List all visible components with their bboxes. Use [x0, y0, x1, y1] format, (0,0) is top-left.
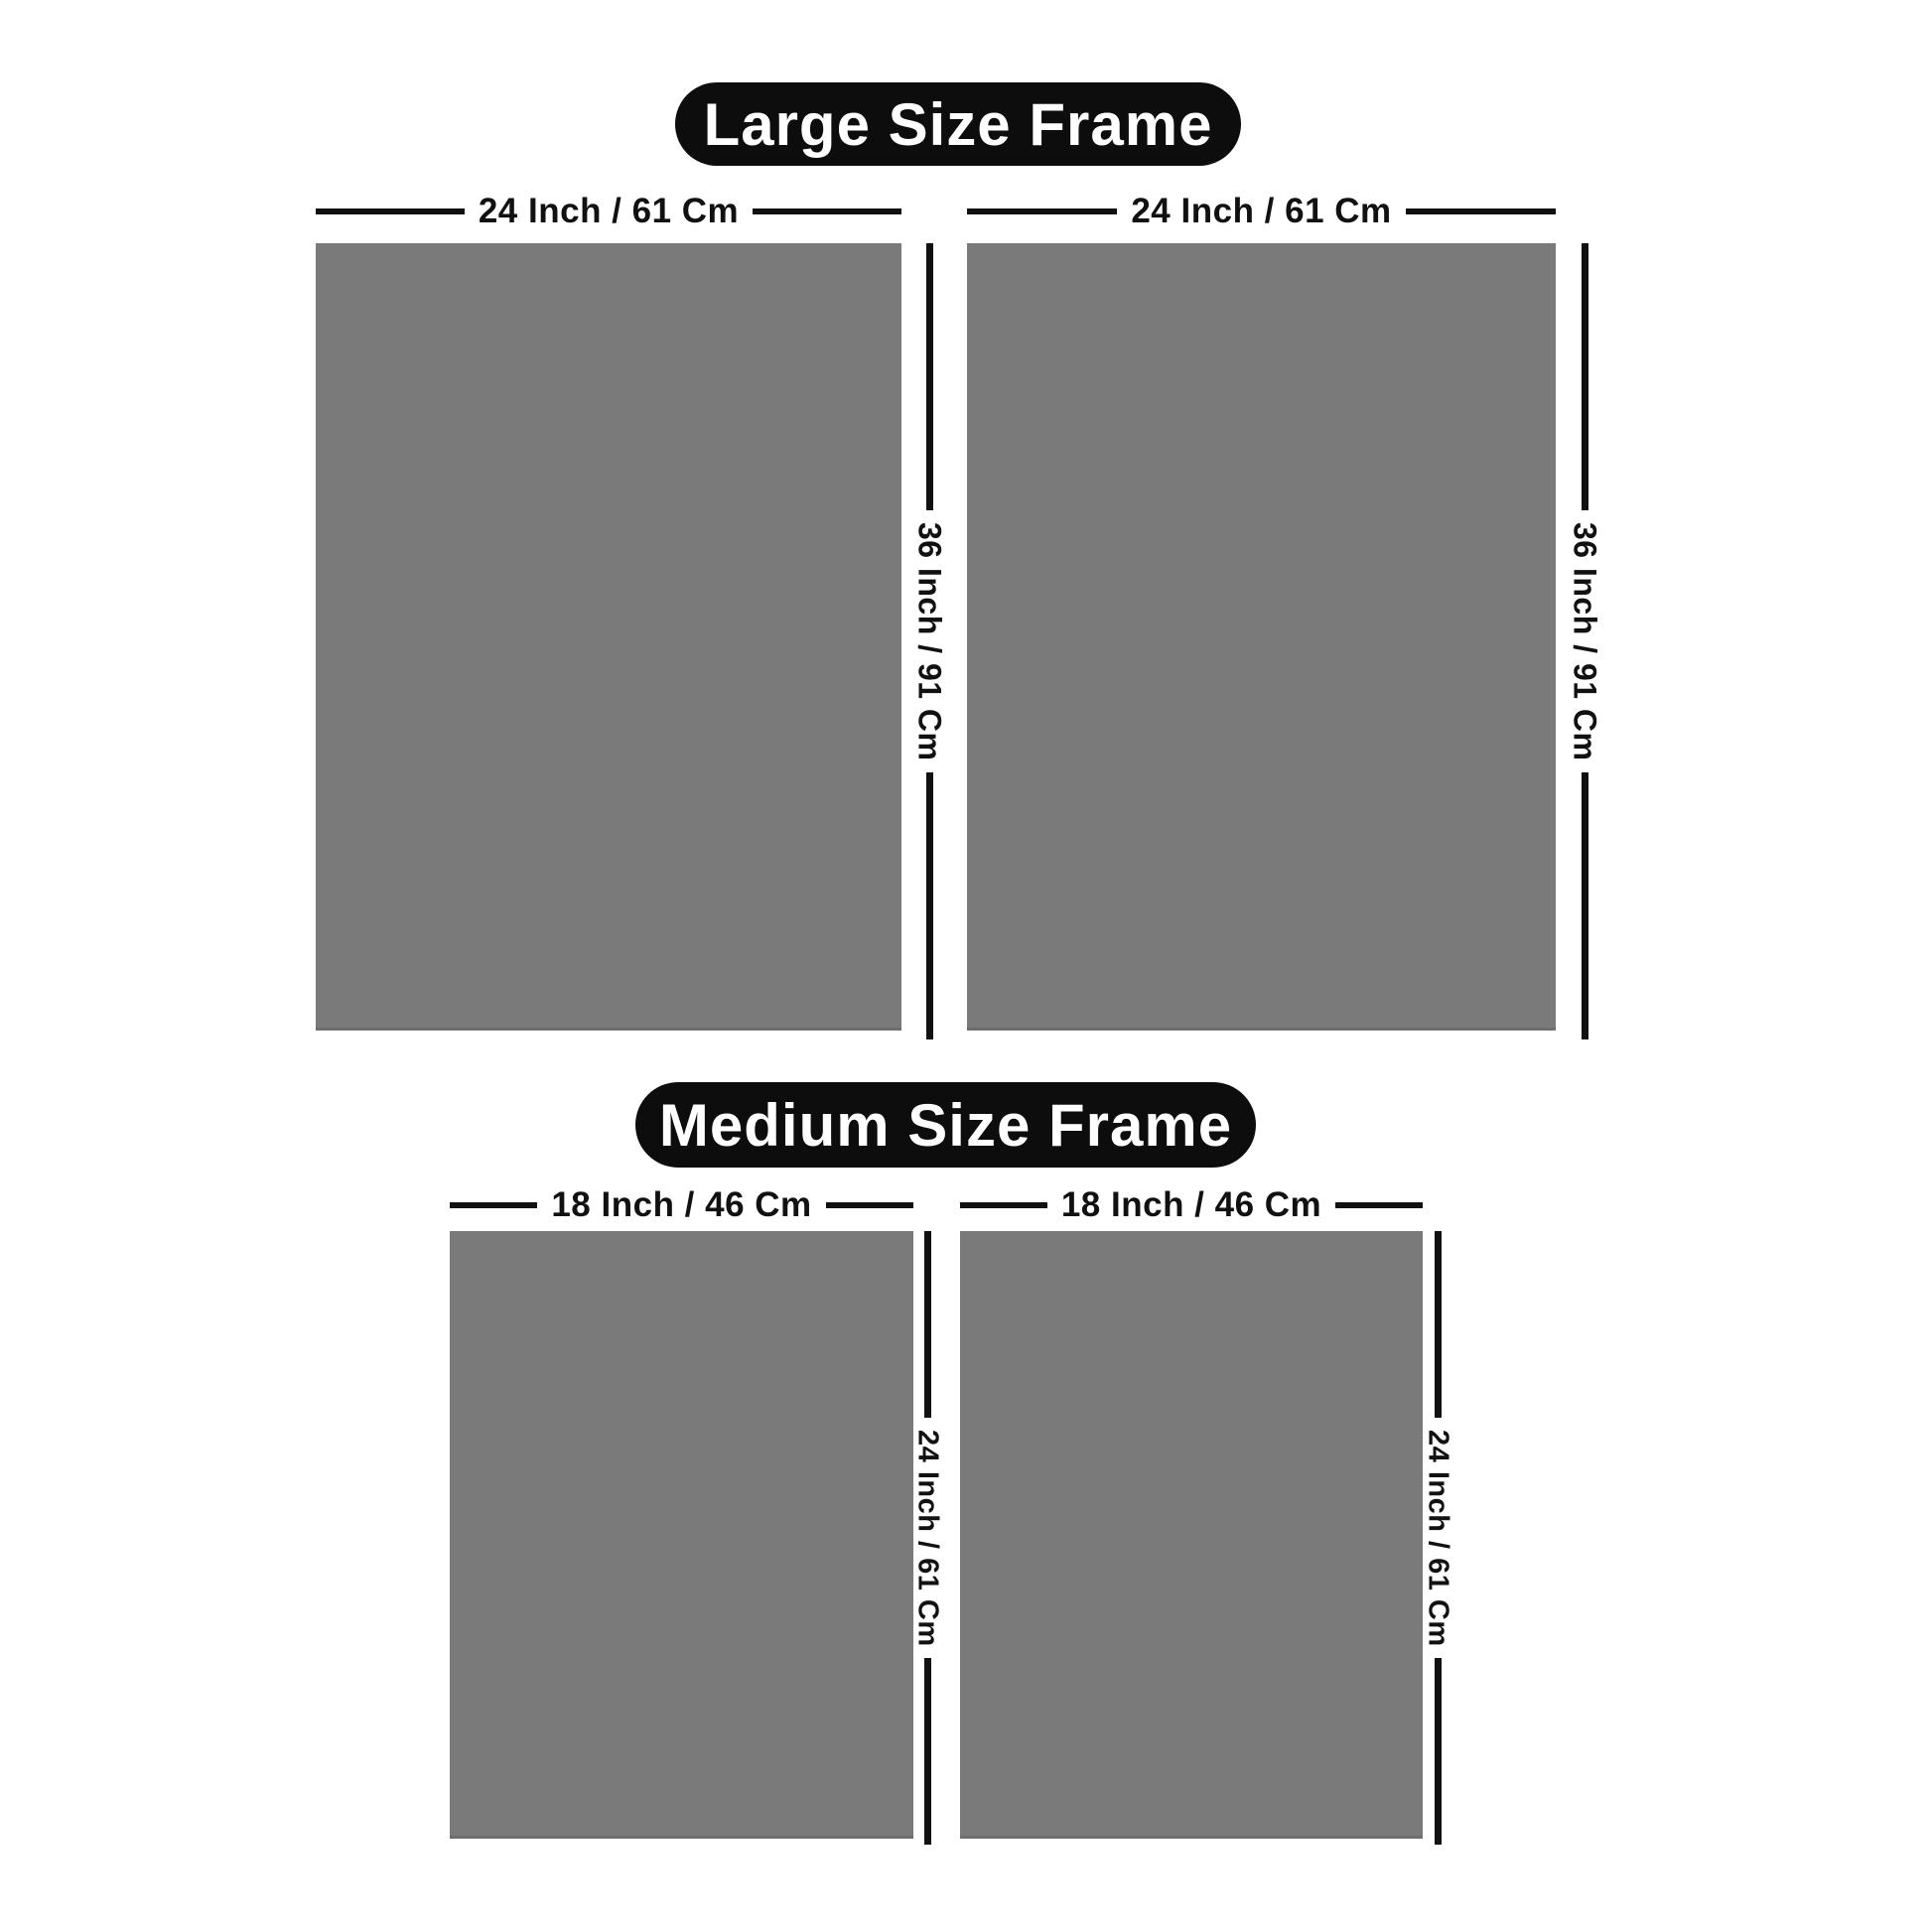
large-frame-left — [316, 243, 901, 1031]
dimension-line-segment — [1335, 1202, 1423, 1208]
width-dimension-large-right: 24 Inch / 61 Cm — [967, 192, 1556, 231]
dimension-line-segment — [926, 772, 933, 1039]
medium-size-title-pill: Medium Size Frame — [635, 1082, 1256, 1168]
dimension-line-segment — [1406, 208, 1556, 214]
dimension-line-segment — [316, 208, 465, 214]
height-dimension-large-left: 36 Inch / 91 Cm — [907, 243, 951, 1039]
dimension-line-segment — [926, 243, 933, 510]
height-dimension-medium-right: 24 Inch / 61 Cm — [1416, 1231, 1459, 1845]
frame-size-guide: Large Size Frame 24 Inch / 61 Cm 24 Inch… — [0, 0, 1932, 1932]
dimension-line-segment — [1582, 243, 1588, 510]
height-label: 24 Inch / 61 Cm — [911, 1430, 944, 1647]
medium-frame-right — [960, 1231, 1423, 1839]
width-label: 24 Inch / 61 Cm — [479, 192, 739, 231]
dimension-line-segment — [1435, 1231, 1442, 1418]
dimension-line-segment — [924, 1231, 931, 1418]
height-dimension-medium-left: 24 Inch / 61 Cm — [905, 1231, 949, 1845]
medium-frame-left — [450, 1231, 913, 1839]
width-label: 24 Inch / 61 Cm — [1131, 192, 1391, 231]
height-dimension-large-right: 36 Inch / 91 Cm — [1563, 243, 1606, 1039]
dimension-line-segment — [1582, 772, 1588, 1039]
width-label: 18 Inch / 46 Cm — [1061, 1185, 1321, 1225]
large-size-title-pill: Large Size Frame — [675, 82, 1241, 166]
width-dimension-large-left: 24 Inch / 61 Cm — [316, 192, 901, 231]
height-label: 36 Inch / 91 Cm — [911, 522, 948, 760]
width-label: 18 Inch / 46 Cm — [551, 1185, 811, 1225]
height-label: 24 Inch / 61 Cm — [1422, 1430, 1454, 1647]
width-dimension-medium-right: 18 Inch / 46 Cm — [960, 1185, 1423, 1225]
dimension-line-segment — [450, 1202, 537, 1208]
dimension-line-segment — [826, 1202, 913, 1208]
dimension-line-segment — [967, 208, 1117, 214]
dimension-line-segment — [960, 1202, 1047, 1208]
width-dimension-medium-left: 18 Inch / 46 Cm — [450, 1185, 913, 1225]
large-frame-right — [967, 243, 1556, 1031]
dimension-line-segment — [1435, 1658, 1442, 1845]
dimension-line-segment — [753, 208, 901, 214]
height-label: 36 Inch / 91 Cm — [1567, 522, 1603, 760]
dimension-line-segment — [924, 1658, 931, 1845]
